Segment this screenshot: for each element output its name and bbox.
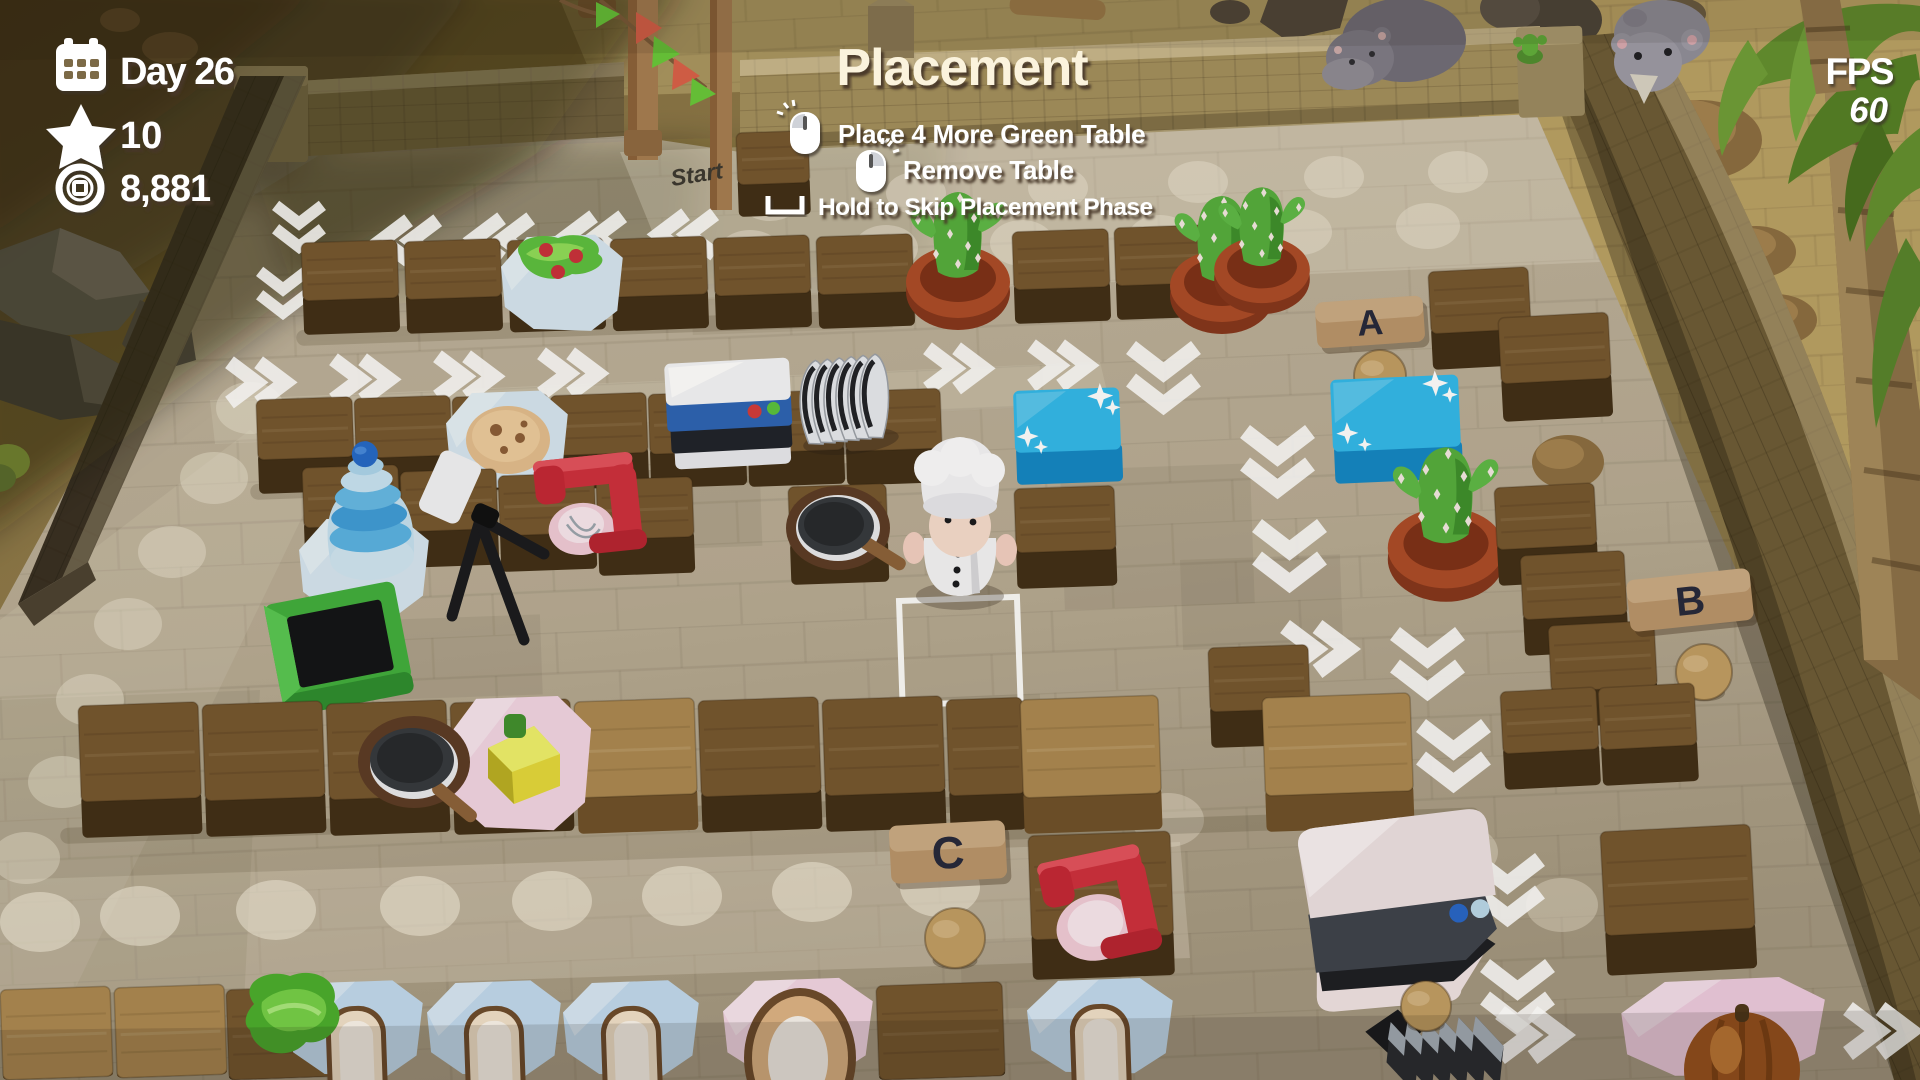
svg-text:Hold to Skip Placement Phase: Hold to Skip Placement Phase [818, 194, 1152, 221]
svg-text:Place 4 More Green Table: Place 4 More Green Table [838, 119, 1145, 149]
svg-text:Remove Table: Remove Table [903, 155, 1074, 185]
svg-text:Day 26: Day 26 [120, 51, 234, 93]
svg-text:FPS: FPS [1826, 51, 1894, 92]
svg-text:8,881: 8,881 [120, 168, 211, 210]
svg-text:10: 10 [120, 115, 162, 157]
svg-text:Placement: Placement [836, 39, 1088, 97]
svg-text:60: 60 [1849, 91, 1888, 130]
